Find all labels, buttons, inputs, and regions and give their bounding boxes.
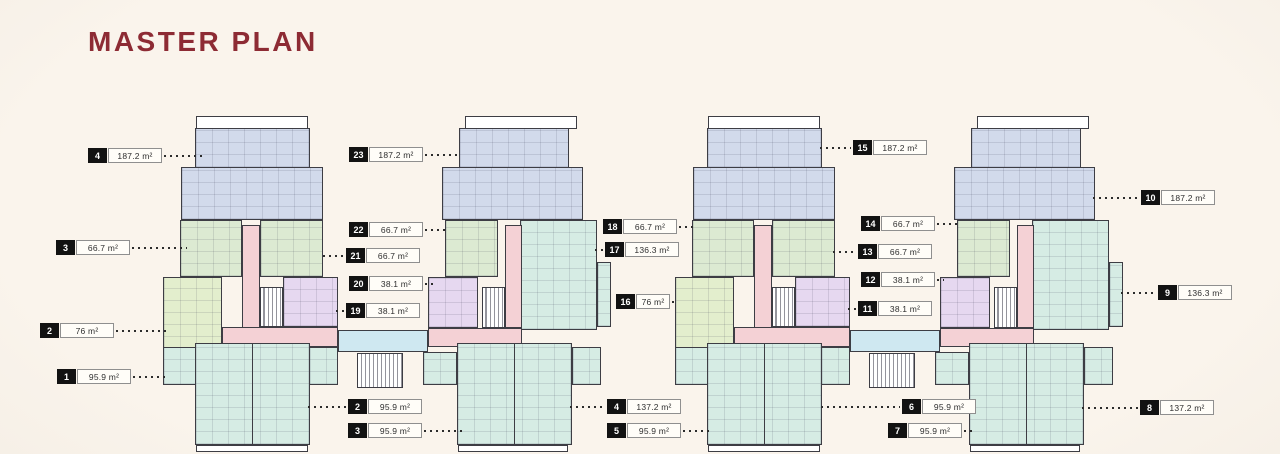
dotted-connector [679, 226, 694, 228]
unit-label-2[interactable]: 276 m² [40, 323, 114, 338]
unit-label-15[interactable]: 15187.2 m² [853, 140, 927, 155]
unit-label-23[interactable]: 23187.2 m² [349, 147, 423, 162]
unit-label-9[interactable]: 9136.3 m² [1158, 285, 1232, 300]
unit-number-badge: 3 [56, 240, 75, 255]
unit-label-13[interactable]: 1366.7 m² [858, 244, 932, 259]
unit-area-box: 187.2 m² [873, 140, 927, 155]
unit-number-badge: 2 [348, 399, 367, 414]
unit-area-box: 38.1 m² [369, 276, 423, 291]
dotted-connector [683, 430, 711, 432]
unit-area-box: 137.2 m² [1160, 400, 1214, 415]
unit-number-badge: 11 [858, 301, 877, 316]
unit-area-box: 136.3 m² [1178, 285, 1232, 300]
unit-area-box: 95.9 m² [368, 423, 422, 438]
master-plan-page: MASTER PLAN 4187.2 m²366.7 m²276 m²195.9… [0, 0, 1280, 454]
unit-number-badge: 16 [616, 294, 635, 309]
unit-number-badge: 17 [605, 242, 624, 257]
dotted-connector [821, 406, 900, 408]
dotted-connector [323, 255, 344, 257]
unit-area-box: 95.9 m² [368, 399, 422, 414]
unit-number-badge: 4 [88, 148, 107, 163]
unit-area-box: 66.7 m² [369, 222, 423, 237]
unit-label-19[interactable]: 1938.1 m² [346, 303, 420, 318]
unit-number-badge: 22 [349, 222, 368, 237]
unit-area-box: 38.1 m² [878, 301, 932, 316]
unit-area-box: 187.2 m² [108, 148, 162, 163]
dotted-connector [570, 406, 605, 408]
dotted-connector [1082, 407, 1138, 409]
unit-number-badge: 19 [346, 303, 365, 318]
unit-number-badge: 23 [349, 147, 368, 162]
dotted-connector [164, 155, 202, 157]
unit-number-badge: 12 [861, 272, 880, 287]
unit-label-21[interactable]: 2166.7 m² [346, 248, 420, 263]
dotted-connector [595, 249, 603, 251]
dotted-connector [424, 430, 463, 432]
unit-number-badge: 7 [888, 423, 907, 438]
unit-label-17[interactable]: 17136.3 m² [605, 242, 679, 257]
dotted-connector [672, 301, 678, 303]
unit-label-11[interactable]: 1138.1 m² [858, 301, 932, 316]
unit-area-box: 66.7 m² [366, 248, 420, 263]
unit-area-box: 95.9 m² [922, 399, 976, 414]
dotted-connector [964, 430, 972, 432]
unit-label-1[interactable]: 195.9 m² [57, 369, 131, 384]
unit-label-12[interactable]: 1238.1 m² [861, 272, 935, 287]
unit-label-10[interactable]: 10187.2 m² [1141, 190, 1215, 205]
unit-area-box: 76 m² [636, 294, 670, 309]
unit-area-box: 66.7 m² [881, 216, 935, 231]
unit-label-16[interactable]: 1676 m² [616, 294, 670, 309]
unit-label-6[interactable]: 695.9 m² [902, 399, 976, 414]
unit-area-box: 136.3 m² [625, 242, 679, 257]
unit-label-8[interactable]: 8137.2 m² [1140, 400, 1214, 415]
unit-label-7[interactable]: 795.9 m² [888, 423, 962, 438]
unit-number-badge: 3 [348, 423, 367, 438]
dotted-connector [336, 310, 344, 312]
unit-area-box: 66.7 m² [623, 219, 677, 234]
dotted-connector [308, 406, 346, 408]
unit-area-box: 66.7 m² [878, 244, 932, 259]
unit-number-badge: 13 [858, 244, 877, 259]
unit-number-badge: 18 [603, 219, 622, 234]
dotted-connector [132, 247, 187, 249]
dotted-connector [425, 154, 461, 156]
unit-number-badge: 6 [902, 399, 921, 414]
dotted-connector [833, 251, 856, 253]
unit-number-badge: 5 [607, 423, 626, 438]
dotted-connector [1093, 197, 1139, 199]
unit-label-4[interactable]: 4137.2 m² [607, 399, 681, 414]
unit-area-box: 76 m² [60, 323, 114, 338]
unit-number-badge: 21 [346, 248, 365, 263]
unit-number-badge: 9 [1158, 285, 1177, 300]
unit-number-badge: 20 [349, 276, 368, 291]
unit-area-box: 66.7 m² [76, 240, 130, 255]
dotted-connector [425, 283, 434, 285]
unit-number-badge: 4 [607, 399, 626, 414]
unit-area-box: 38.1 m² [366, 303, 420, 318]
dotted-connector [848, 308, 856, 310]
unit-number-badge: 15 [853, 140, 872, 155]
unit-area-box: 95.9 m² [77, 369, 131, 384]
unit-label-18[interactable]: 1866.7 m² [603, 219, 677, 234]
unit-number-badge: 14 [861, 216, 880, 231]
unit-number-badge: 1 [57, 369, 76, 384]
unit-labels-layer: 4187.2 m²366.7 m²276 m²195.9 m²23187.2 m… [0, 0, 1280, 454]
unit-number-badge: 10 [1141, 190, 1160, 205]
dotted-connector [1121, 292, 1156, 294]
unit-area-box: 187.2 m² [369, 147, 423, 162]
dotted-connector [937, 223, 959, 225]
unit-area-box: 95.9 m² [908, 423, 962, 438]
unit-label-3[interactable]: 366.7 m² [56, 240, 130, 255]
unit-label-4[interactable]: 4187.2 m² [88, 148, 162, 163]
unit-number-badge: 8 [1140, 400, 1159, 415]
unit-label-14[interactable]: 1466.7 m² [861, 216, 935, 231]
dotted-connector [116, 330, 168, 332]
dotted-connector [133, 376, 168, 378]
unit-label-3[interactable]: 395.9 m² [348, 423, 422, 438]
unit-label-2[interactable]: 295.9 m² [348, 399, 422, 414]
unit-area-box: 38.1 m² [881, 272, 935, 287]
unit-label-5[interactable]: 595.9 m² [607, 423, 681, 438]
unit-label-22[interactable]: 2266.7 m² [349, 222, 423, 237]
unit-area-box: 95.9 m² [627, 423, 681, 438]
unit-area-box: 137.2 m² [627, 399, 681, 414]
dotted-connector [425, 229, 449, 231]
dotted-connector [937, 279, 944, 281]
unit-number-badge: 2 [40, 323, 59, 338]
unit-label-20[interactable]: 2038.1 m² [349, 276, 423, 291]
dotted-connector [820, 147, 851, 149]
unit-area-box: 187.2 m² [1161, 190, 1215, 205]
